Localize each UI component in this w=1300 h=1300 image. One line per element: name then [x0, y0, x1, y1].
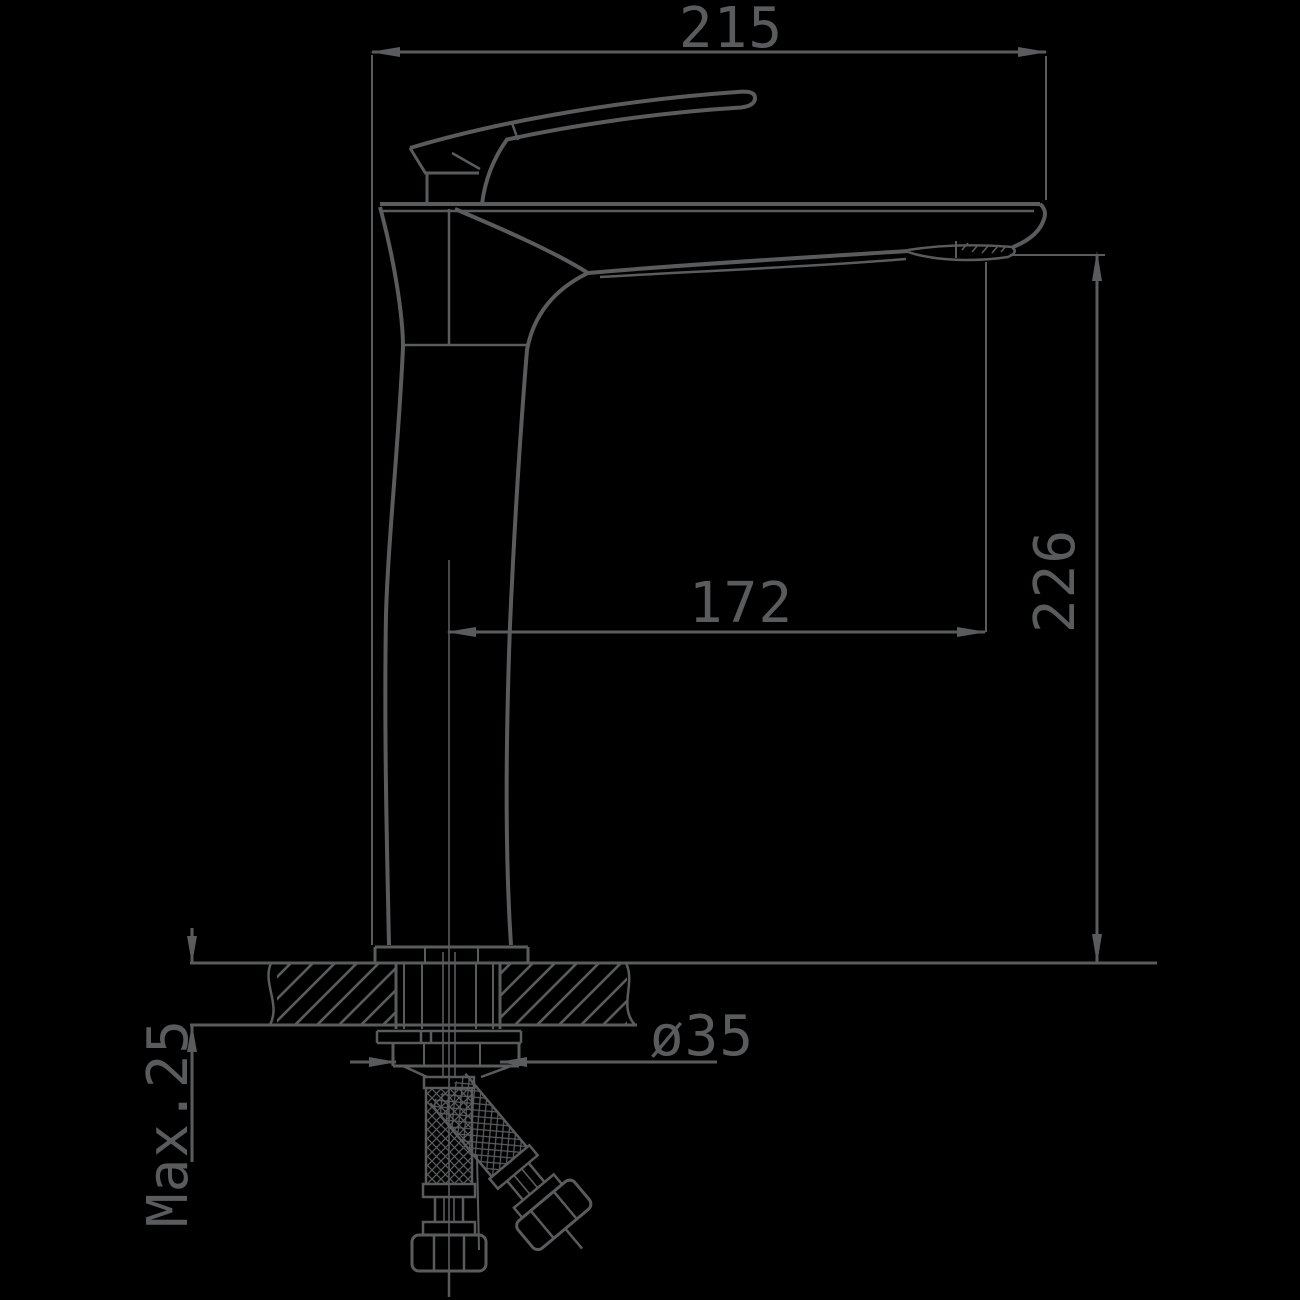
- dimension-overall-width: 215: [370, 0, 1048, 945]
- cartridge-lines: [402, 209, 527, 345]
- faucet-technical-drawing: 215 226 172 ø35 Max.25: [0, 0, 1300, 1300]
- dim-label-max25: Max.25: [136, 1019, 201, 1227]
- counter-break-right: [626, 963, 635, 1025]
- counter-break-left: [268, 963, 273, 1025]
- handle-lever: [410, 92, 755, 204]
- handle-pivot-base: [410, 148, 479, 204]
- technical-drawing-canvas: 215 226 172 ø35 Max.25: [0, 0, 1300, 1300]
- dimension-spout-reach: 172: [446, 262, 987, 637]
- supply-hoses: [412, 1065, 610, 1297]
- shank-hole-edges: [396, 963, 500, 1029]
- faucet-outline: [375, 92, 1045, 963]
- hatch-right: [500, 965, 627, 1024]
- dim-label-226: 226: [1023, 529, 1088, 633]
- dim-label-diameter: ø35: [650, 1004, 754, 1069]
- base-flange: [375, 947, 528, 963]
- column-left-edge: [380, 207, 403, 945]
- dimension-spout-height: 226: [1010, 251, 1105, 964]
- dim-label-215: 215: [679, 0, 783, 61]
- dimension-deck-thickness: Max.25: [136, 928, 201, 1227]
- spout-aerator: [908, 241, 1015, 260]
- column-right-edge: [455, 209, 588, 945]
- dim-label-172: 172: [689, 571, 793, 636]
- hatch-left: [277, 965, 396, 1024]
